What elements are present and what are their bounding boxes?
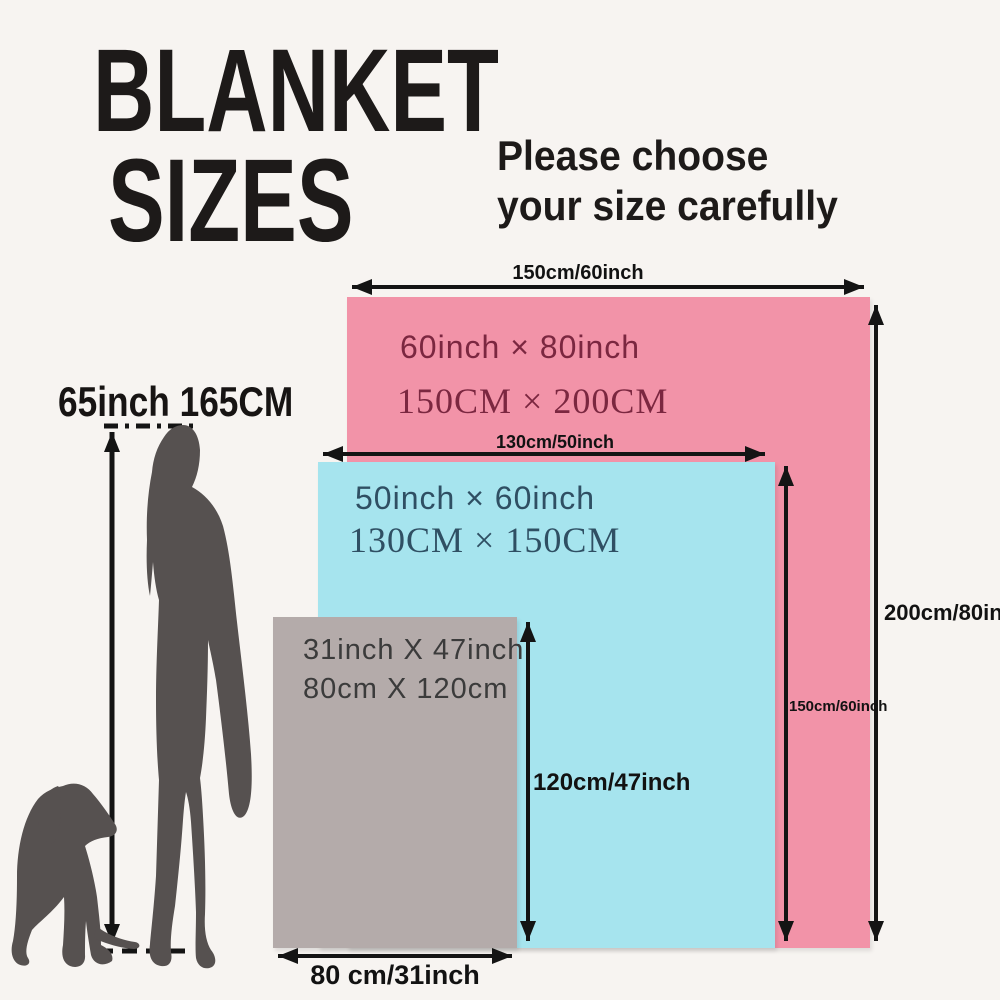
blanket-medium-inch-label: 50inch × 60inch [355, 480, 595, 517]
small-height-label: 120cm/47inch [533, 769, 690, 797]
medium-height-label: 150cm/60inch [789, 698, 887, 715]
small-width-label: 80 cm/31inch [285, 960, 505, 991]
blanket-medium-cm-label: 130CM × 150CM [349, 519, 620, 561]
large-height-label: 200cm/80inch [884, 600, 1000, 626]
blanket-size-chart: BLANKET SIZES Please choose your size ca… [0, 0, 1000, 1000]
woman-silhouette [147, 425, 252, 968]
blanket-large-cm-label: 150CM × 200CM [397, 380, 668, 422]
dog-silhouette [12, 784, 140, 967]
blanket-small-inch-label: 31inch X 47inch [303, 634, 524, 667]
blanket-small-cm-label: 80cm X 120cm [303, 673, 508, 706]
medium-width-label: 130cm/50inch [455, 432, 655, 453]
large-width-label: 150cm/60inch [468, 262, 688, 285]
blanket-large-inch-label: 60inch × 80inch [400, 329, 640, 366]
